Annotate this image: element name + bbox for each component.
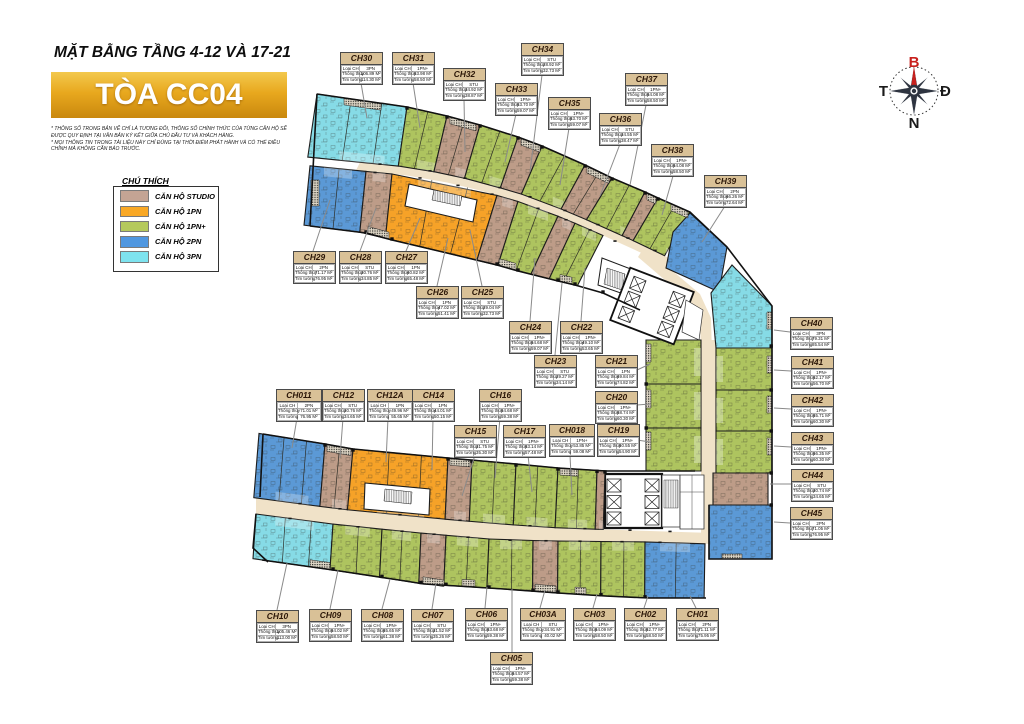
svg-text:T: T (879, 83, 888, 100)
svg-text:N: N (909, 115, 920, 132)
svg-text:B: B (909, 54, 920, 71)
svg-text:Đ: Đ (940, 83, 951, 100)
